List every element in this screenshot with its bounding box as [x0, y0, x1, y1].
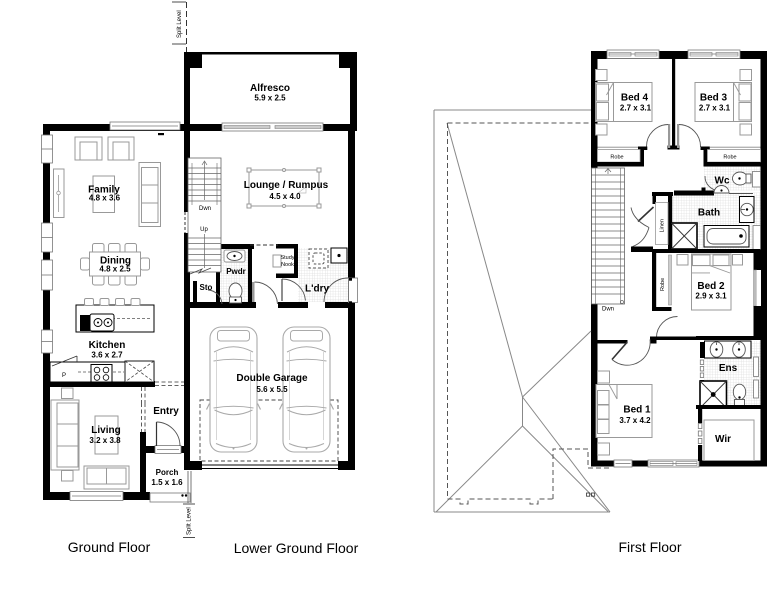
svg-text:Study: Study — [280, 255, 294, 261]
svg-text:Robe: Robe — [660, 278, 666, 291]
svg-text:Split Level: Split Level — [177, 10, 183, 38]
svg-text:Bed 3: Bed 3 — [700, 93, 728, 104]
svg-text:Sto: Sto — [200, 283, 213, 292]
svg-text:Alfresco: Alfresco — [250, 83, 290, 94]
svg-text:Lower Ground Floor: Lower Ground Floor — [234, 540, 359, 556]
svg-text:Bed 2: Bed 2 — [697, 281, 725, 292]
svg-text:Dwn: Dwn — [199, 206, 211, 212]
svg-text:4.8 x 3.6: 4.8 x 3.6 — [89, 194, 121, 203]
svg-text:Ground Floor: Ground Floor — [68, 539, 151, 555]
svg-text:2.9 x 3.1: 2.9 x 3.1 — [695, 292, 727, 301]
svg-text:Dwn: Dwn — [602, 307, 614, 313]
svg-text:L'dry: L'dry — [305, 284, 329, 295]
svg-text:2.7 x 3.1: 2.7 x 3.1 — [620, 104, 652, 113]
svg-text:1.5 x 1.6: 1.5 x 1.6 — [151, 478, 183, 487]
svg-text:Porch: Porch — [156, 468, 179, 477]
svg-text:Double Garage: Double Garage — [236, 373, 308, 384]
svg-text:Pwdr: Pwdr — [226, 267, 246, 276]
svg-text:P: P — [62, 373, 66, 379]
svg-text:Wir: Wir — [715, 434, 731, 445]
svg-text:Ens: Ens — [719, 363, 738, 374]
svg-text:5.9 x 2.5: 5.9 x 2.5 — [254, 94, 286, 103]
svg-text:First Floor: First Floor — [619, 539, 682, 555]
svg-text:Bed 4: Bed 4 — [621, 93, 649, 104]
svg-text:5.6 x 5.5: 5.6 x 5.5 — [256, 385, 288, 394]
svg-text:Linen: Linen — [660, 219, 666, 232]
svg-text:Lounge / Rumpus: Lounge / Rumpus — [244, 180, 329, 191]
svg-text:Wc: Wc — [715, 176, 730, 187]
svg-text:Living: Living — [91, 425, 120, 436]
svg-text:2.7 x 3.1: 2.7 x 3.1 — [699, 104, 731, 113]
svg-text:4.8 x 2.5: 4.8 x 2.5 — [99, 265, 131, 274]
svg-text:3.2 x 3.8: 3.2 x 3.8 — [89, 436, 121, 445]
svg-text:Robe: Robe — [610, 155, 623, 161]
svg-text:3.7 x 4.2: 3.7 x 4.2 — [619, 416, 651, 425]
svg-text:Entry: Entry — [153, 406, 179, 417]
svg-text:Kitchen: Kitchen — [89, 340, 126, 351]
svg-text:4.5 x 4.0: 4.5 x 4.0 — [269, 192, 301, 201]
svg-text:Up: Up — [200, 227, 208, 233]
svg-text:Split Level: Split Level — [187, 507, 193, 535]
svg-text:3.6 x 2.7: 3.6 x 2.7 — [91, 351, 123, 360]
svg-text:Bed 1: Bed 1 — [623, 405, 651, 416]
svg-text:Nook: Nook — [281, 262, 294, 268]
svg-text:Bath: Bath — [698, 208, 720, 219]
svg-text:Robe: Robe — [723, 155, 736, 161]
